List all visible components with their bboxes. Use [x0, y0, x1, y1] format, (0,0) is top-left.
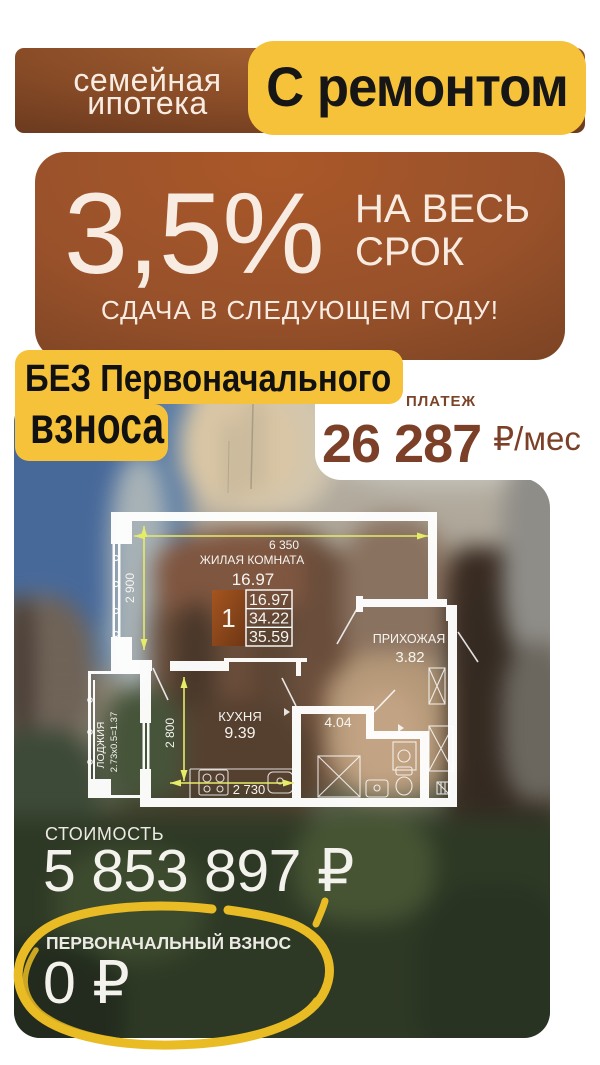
svg-text:2 800: 2 800	[163, 718, 177, 748]
svg-text:6 350: 6 350	[269, 538, 299, 552]
svg-text:ЖИЛАЯ КОМНАТА: ЖИЛАЯ КОМНАТА	[200, 553, 304, 567]
svg-text:9.39: 9.39	[224, 725, 255, 742]
svg-text:ПРИХОЖАЯ: ПРИХОЖАЯ	[373, 632, 446, 646]
svg-text:35.59: 35.59	[249, 629, 289, 646]
svg-text:16.97: 16.97	[249, 592, 289, 609]
svg-text:2.73x0.5=1.37: 2.73x0.5=1.37	[109, 712, 120, 772]
svg-text:2 900: 2 900	[123, 573, 137, 603]
svg-text:4.04: 4.04	[324, 714, 351, 730]
svg-text:16.97: 16.97	[232, 570, 275, 589]
svg-text:34.22: 34.22	[249, 611, 289, 628]
svg-text:1: 1	[221, 603, 235, 633]
svg-text:КУХНЯ: КУХНЯ	[218, 709, 261, 724]
svg-text:ЛОДЖИЯ: ЛОДЖИЯ	[95, 722, 107, 769]
svg-text:2 730: 2 730	[233, 782, 266, 797]
svg-text:3.82: 3.82	[395, 649, 424, 666]
